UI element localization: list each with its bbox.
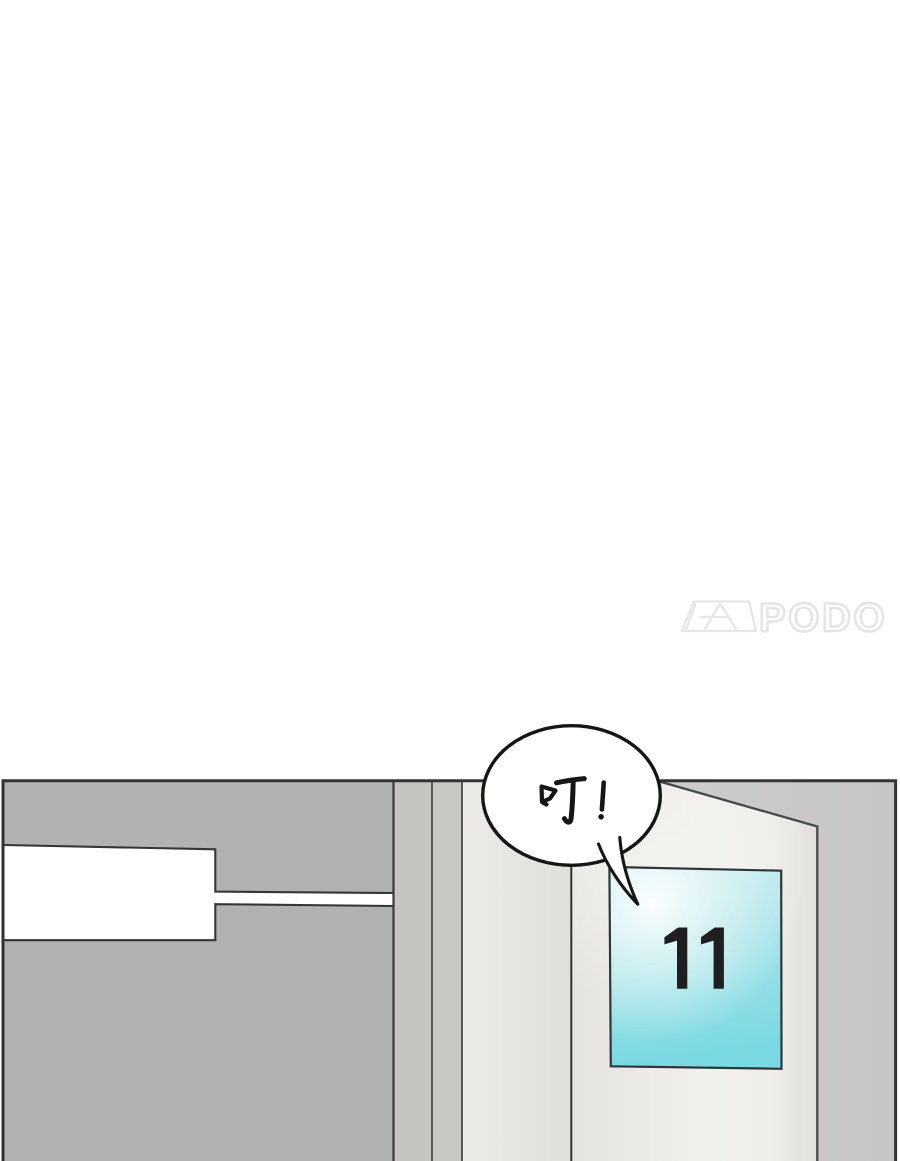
svg-text:PODO: PODO bbox=[759, 596, 887, 640]
